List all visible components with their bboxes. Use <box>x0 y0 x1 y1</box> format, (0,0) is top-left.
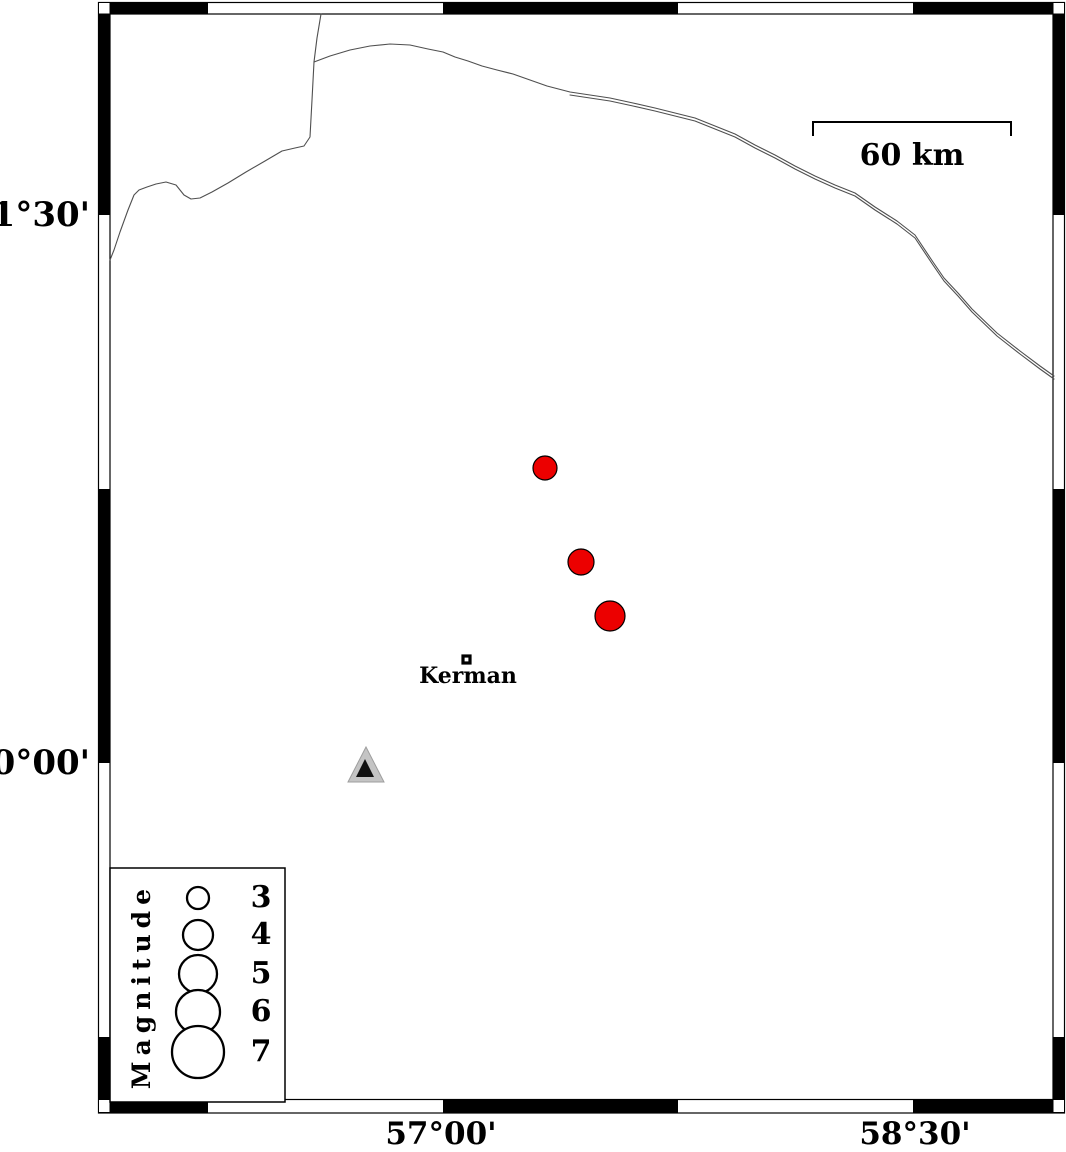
station-marker <box>348 747 384 782</box>
legend-magnitude-circle <box>183 920 213 950</box>
frame-tick-segment <box>99 14 110 215</box>
legend-magnitude-label: 5 <box>238 955 284 993</box>
scale-bar <box>813 122 1011 136</box>
lat-label-30-00: 30°00' <box>0 743 88 783</box>
frame-corner-square <box>1053 1100 1065 1113</box>
earthquake-marker <box>533 456 557 480</box>
frame-tick-segment <box>99 489 110 763</box>
geographic-lines <box>110 14 1054 379</box>
lon-label-58-30: 58°30' <box>815 1117 1015 1151</box>
city-label: Kerman <box>388 664 548 688</box>
frame-tick-segment <box>1053 489 1065 763</box>
frame-tick-segment <box>913 3 1053 14</box>
legend-title: Magnitude <box>122 866 162 1106</box>
seismicity-map: 31°30' 30°00' 57°00' 58°30' 60 km Kerman… <box>0 0 1066 1152</box>
frame-corner-square <box>99 1100 111 1113</box>
frame-tick-segment <box>110 3 208 14</box>
city-marker <box>463 656 470 663</box>
earthquake-marker <box>568 549 594 575</box>
frame-tick-segment <box>443 3 678 14</box>
lon-label-57-00: 57°00' <box>341 1117 541 1151</box>
frame-tick-segment <box>913 1100 1053 1113</box>
scale-bar-label: 60 km <box>802 139 1022 173</box>
earthquake-markers <box>533 456 625 631</box>
boundary-line-west <box>110 14 321 260</box>
lat-label-31-30: 31°30' <box>0 195 88 235</box>
legend-magnitude-label: 7 <box>238 1033 284 1071</box>
legend-magnitude-label: 4 <box>238 916 284 954</box>
boundary-line-north-lower <box>570 95 1054 379</box>
frame-tick-segment <box>443 1100 678 1113</box>
frame-tick-segment <box>99 1037 110 1099</box>
legend-magnitude-circle <box>187 887 209 909</box>
frame-tick-segment <box>1053 14 1065 215</box>
legend-magnitude-circle <box>172 1026 224 1078</box>
earthquake-marker <box>595 601 625 631</box>
frame-corner-square <box>99 3 111 15</box>
boundary-line-north-upper <box>314 44 1054 376</box>
frame-tick-segment <box>1053 1037 1065 1099</box>
frame-corner-square <box>1053 3 1065 15</box>
legend-magnitude-label: 6 <box>238 993 284 1031</box>
legend-magnitude-label: 3 <box>238 879 284 917</box>
legend-magnitude-circle <box>179 955 217 993</box>
